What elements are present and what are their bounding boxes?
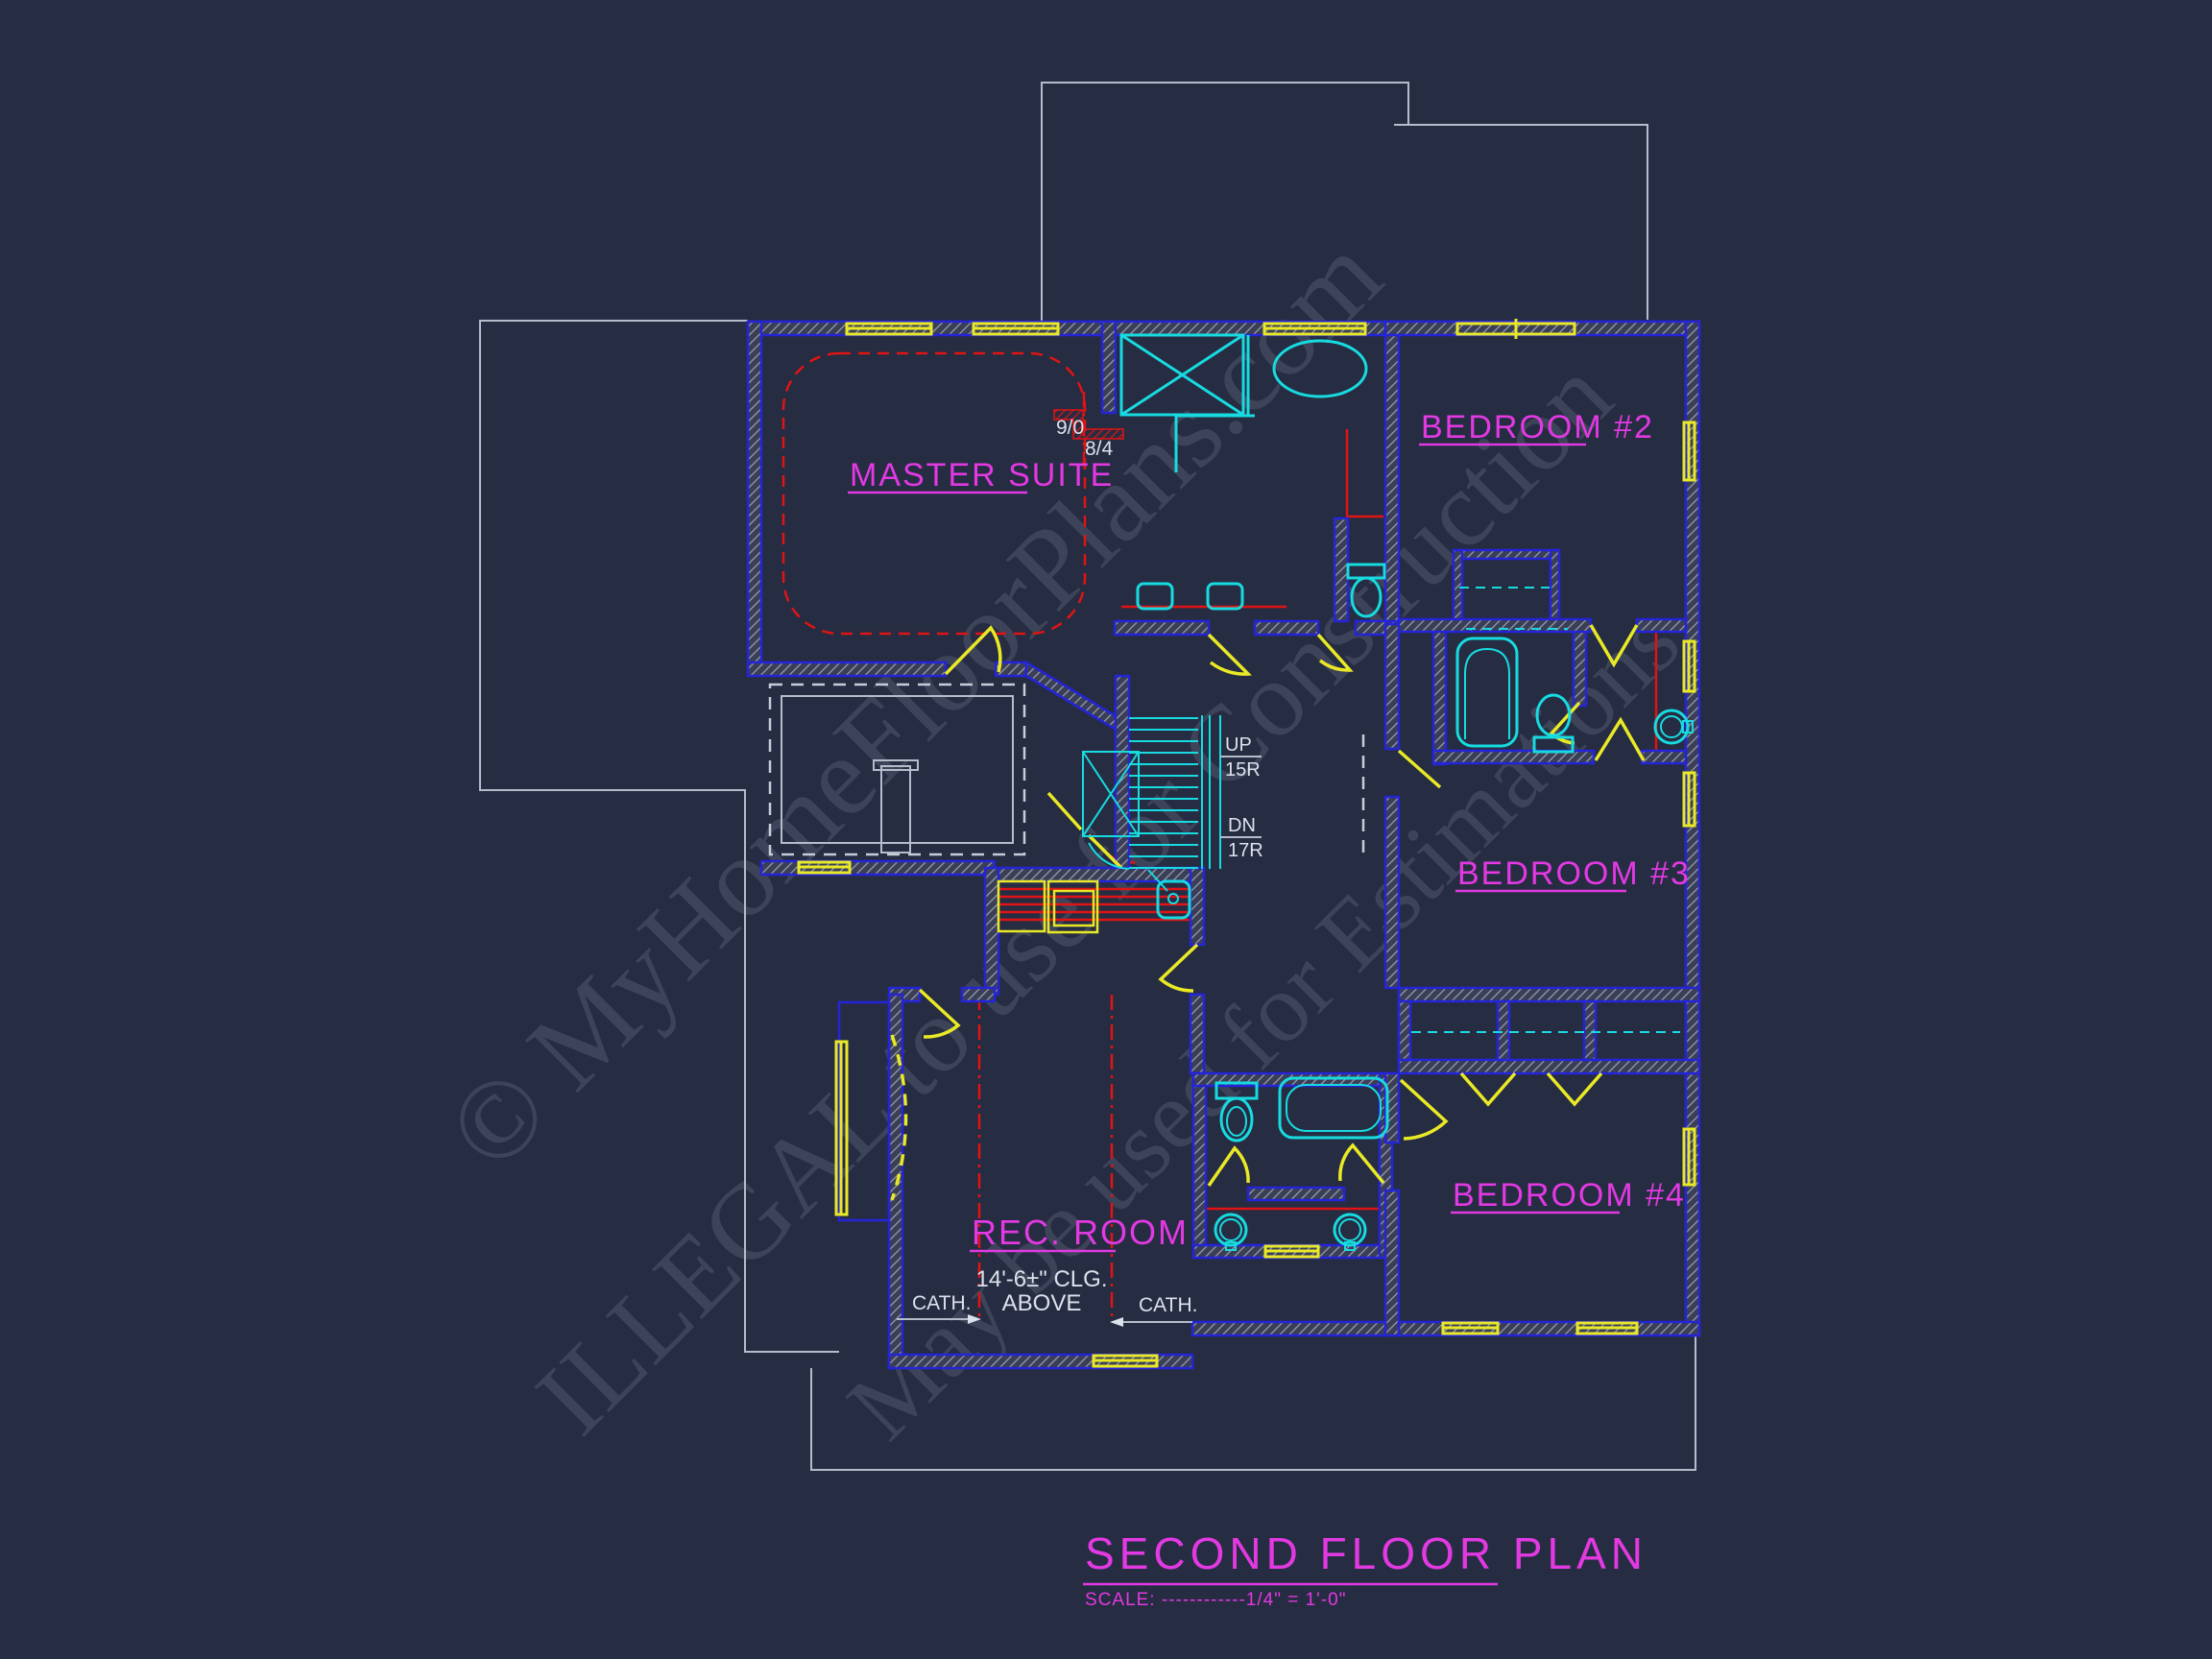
wet-bar-door — [1161, 945, 1197, 991]
hall-bath-tub — [1280, 1078, 1387, 1138]
cathedral-ceiling-label: CATH. — [912, 1292, 971, 1314]
master-vanity-sinks — [1138, 584, 1242, 609]
bath-shelves — [1347, 429, 1383, 517]
stair-up-label: UP — [1225, 734, 1252, 756]
room-label-rec-room: REC. ROOM — [972, 1213, 1189, 1252]
stair-down-risers: 17R — [1228, 840, 1263, 861]
ceiling-note: ABOVE — [1002, 1290, 1082, 1316]
door-size-annotation: 8/4 — [1085, 438, 1114, 460]
room-label-master-suite: MASTER SUITE — [850, 457, 1114, 493]
second-floor-plan-drawing: © MyHomeFloorPlans.com ILLEGAL to use fo… — [0, 0, 2212, 1659]
ceiling-note: 14'-6±" CLG. — [976, 1266, 1108, 1292]
bath-door — [1209, 1148, 1248, 1186]
drawing-title: SECOND FLOOR PLAN — [1085, 1528, 1647, 1578]
door-size-annotation: 9/0 — [1056, 417, 1084, 439]
stair-down-label: DN — [1228, 815, 1256, 836]
blueprint-canvas: © MyHomeFloorPlans.com ILLEGAL to use fo… — [0, 0, 2212, 1659]
bath-door — [1340, 1145, 1383, 1183]
title-block: SECOND FLOOR PLAN SCALE: ------------1/4… — [1083, 1528, 1647, 1610]
closet-door — [1461, 1073, 1515, 1104]
room-label-bedroom4: BEDROOM #4 — [1453, 1177, 1686, 1214]
room-label-bedroom2: BEDROOM #2 — [1421, 409, 1654, 445]
arrow-left — [1110, 1317, 1123, 1327]
stair-up-risers: 15R — [1225, 759, 1261, 781]
room-label-bedroom3: BEDROOM #3 — [1457, 855, 1691, 892]
bedroom4-door — [1401, 1080, 1446, 1139]
drawing-scale: SCALE: ------------1/4" = 1'-0" — [1085, 1590, 1346, 1610]
cathedral-ceiling-label: CATH. — [1139, 1294, 1197, 1316]
closet-door — [1548, 1073, 1601, 1104]
